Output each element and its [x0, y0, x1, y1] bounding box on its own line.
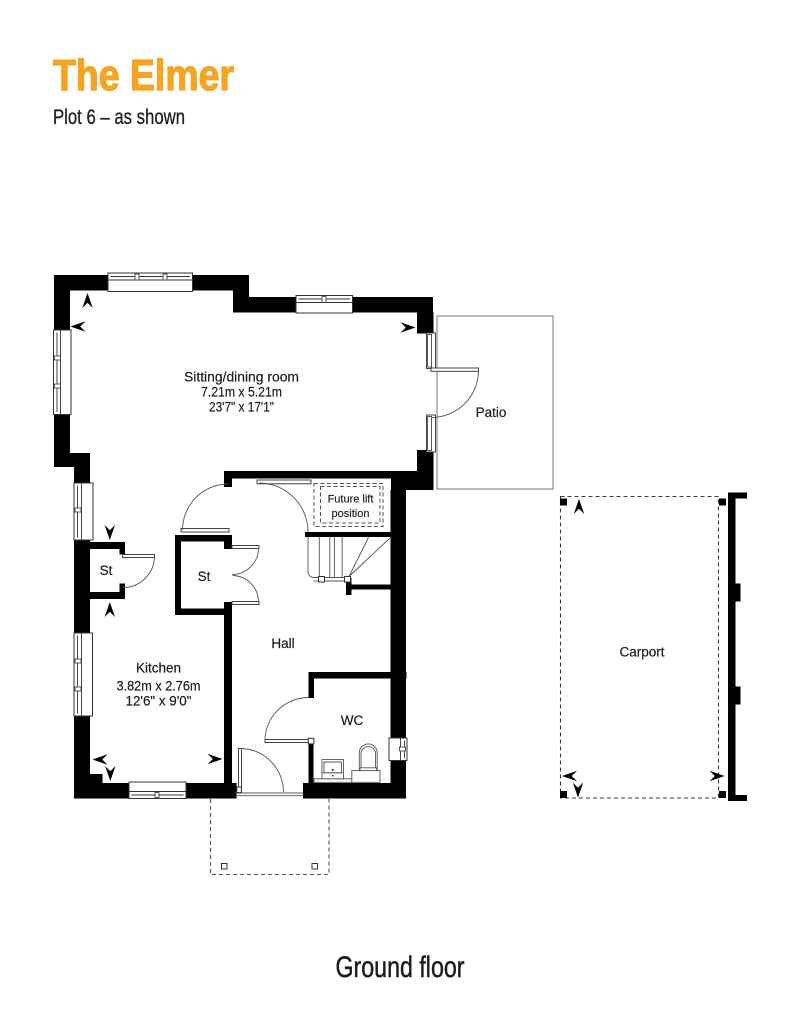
svg-text:Kitchen: Kitchen [136, 661, 181, 676]
svg-text:Hall: Hall [271, 636, 294, 651]
svg-text:St: St [100, 563, 113, 578]
svg-text:The Elmer: The Elmer [53, 51, 234, 100]
svg-text:Future lift: Future lift [328, 494, 374, 506]
svg-text:Sitting/dining room: Sitting/dining room [184, 370, 299, 385]
svg-text:12'6" x 9'0": 12'6" x 9'0" [126, 694, 192, 709]
svg-text:3.82m x 2.76m: 3.82m x 2.76m [117, 679, 201, 694]
svg-text:23'7" x 17'1": 23'7" x 17'1" [209, 400, 274, 415]
svg-text:WC: WC [341, 713, 364, 728]
svg-text:Carport: Carport [619, 645, 664, 660]
svg-text:Patio: Patio [476, 405, 507, 420]
svg-text:7.21m x 5.21m: 7.21m x 5.21m [201, 385, 282, 400]
svg-text:Plot 6 – as shown: Plot 6 – as shown [53, 105, 185, 129]
svg-text:position: position [332, 508, 370, 520]
svg-text:St: St [198, 569, 211, 584]
svg-text:Ground floor: Ground floor [336, 951, 465, 984]
